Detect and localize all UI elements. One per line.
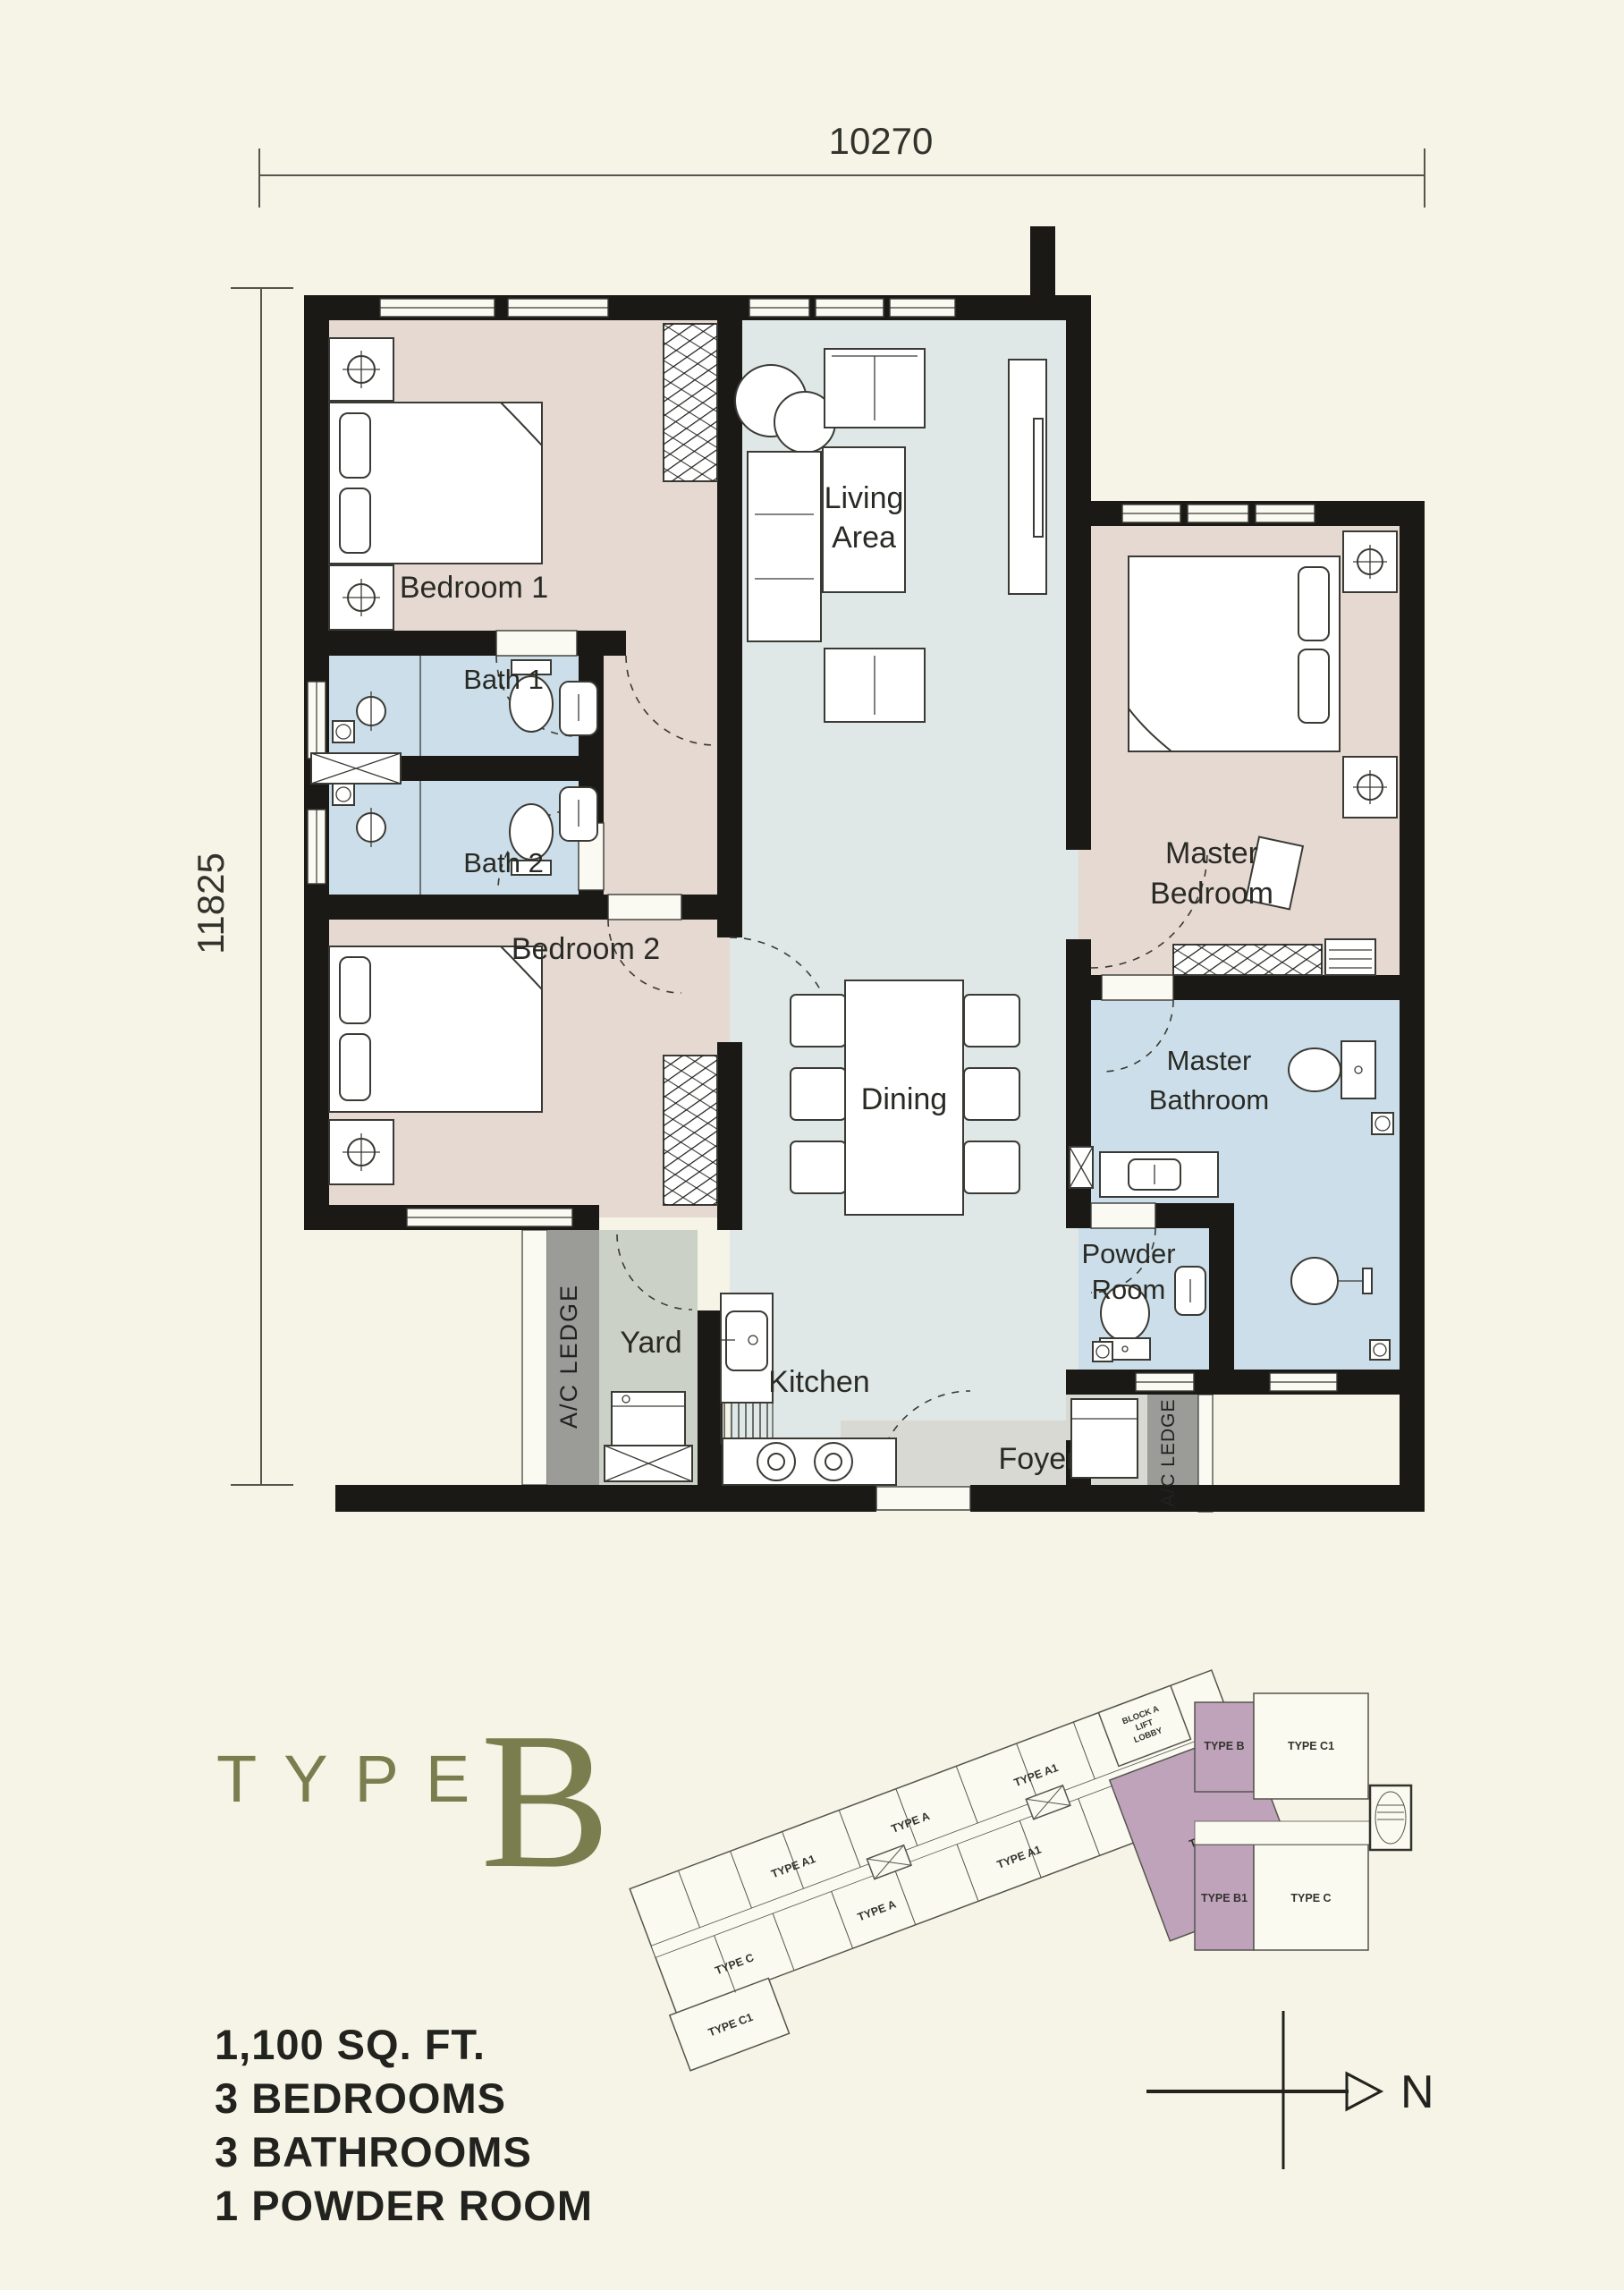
stat-area: 1,100 SQ. FT.: [215, 2021, 486, 2068]
vent-icon: [605, 1446, 692, 1481]
site-unit-label: TYPE C1: [1288, 1740, 1334, 1752]
ac-ledge-left-label: A/C LEDGE: [555, 1284, 582, 1429]
north-label: N: [1400, 2066, 1434, 2118]
stat-bedrooms: 3 BEDROOMS: [215, 2074, 506, 2122]
master-bedroom-label-line2: Bedroom: [1150, 877, 1273, 911]
site-stair-icon: [1370, 1785, 1411, 1850]
master-bathroom-label-line1: Master: [1167, 1045, 1252, 1076]
master-bedroom-label-line1: Master: [1165, 836, 1258, 870]
exhaust-fan-icon: [333, 721, 354, 742]
site-unit-label-highlight: TYPE B1: [1201, 1892, 1248, 1904]
powder-room-label-line2: Room: [1092, 1274, 1166, 1305]
ac-ledge-left: A/C LEDGE: [555, 1284, 582, 1429]
site-unit-label: TYPE C: [1290, 1892, 1331, 1904]
fridge-icon: [1071, 1399, 1138, 1478]
sink-icon: [560, 682, 597, 735]
master-bathroom-label-line2: Bathroom: [1149, 1084, 1269, 1115]
kitchen-sink-icon: [721, 1311, 767, 1370]
stat-bathrooms: 3 BATHROOMS: [215, 2128, 532, 2175]
dimension-top-label: 10270: [829, 120, 934, 162]
room-dining: Dining: [791, 980, 1019, 1215]
type-word: TYPE: [216, 1742, 496, 1816]
floor-plan-page: Bedroom 1 Bath 1 Bath 2 Bedroom 2: [0, 0, 1624, 2290]
room-foyer: Foyer: [999, 1442, 1077, 1476]
foyer-label: Foyer: [999, 1442, 1077, 1476]
unit-stats: 1,100 SQ. FT. 3 BEDROOMS 3 BATHROOMS 1 P…: [215, 2021, 593, 2229]
unit-type-title: TYPE B: [216, 1693, 611, 1909]
ac-ledge-right-label: A/C LEDGE: [1158, 1398, 1179, 1506]
vanity-sink-icon: [1100, 1152, 1218, 1197]
bath-1-label: Bath 1: [463, 664, 544, 695]
sink-icon: [560, 787, 597, 841]
yard-label: Yard: [620, 1326, 681, 1360]
exhaust-fan-icon: [333, 784, 354, 805]
bedroom-2-label: Bedroom 2: [512, 932, 660, 966]
tv-console: [1009, 360, 1046, 594]
kitchen-label: Kitchen: [768, 1365, 869, 1399]
shaft-icon: [1070, 1147, 1093, 1188]
site-plan: TYPE A1 TYPE A TYPE A1 TYPE C TYPE A TYP…: [623, 1667, 1411, 2115]
site-unit-label-highlight: TYPE B: [1204, 1740, 1244, 1752]
bedroom-1-label: Bedroom 1: [400, 571, 548, 605]
exhaust-fan-icon: [1372, 1113, 1393, 1134]
exhaust-fan-icon: [1093, 1342, 1112, 1361]
floor-plan-svg: Bedroom 1 Bath 1 Bath 2 Bedroom 2: [0, 0, 1624, 2290]
type-letter: B: [480, 1693, 610, 1909]
dimension-left: [231, 288, 293, 1485]
north-arrow: N: [1146, 2011, 1434, 2169]
site-right-block: TYPE B TYPE C1 TYPE B1 TYPE C: [1195, 1693, 1411, 1950]
shaft-icon: [311, 753, 401, 784]
bath-2-label: Bath 2: [463, 847, 544, 878]
living-label-line2: Area: [832, 521, 896, 555]
stat-powder: 1 POWDER ROOM: [215, 2182, 593, 2229]
living-label-line1: Living: [825, 481, 904, 515]
ac-ledge-right: A/C LEDGE: [1158, 1398, 1179, 1506]
dimension-left-label: 11825: [190, 852, 232, 954]
powder-room-label-line1: Powder: [1081, 1238, 1175, 1269]
sink-icon: [1175, 1267, 1205, 1315]
dining-label: Dining: [861, 1082, 947, 1116]
